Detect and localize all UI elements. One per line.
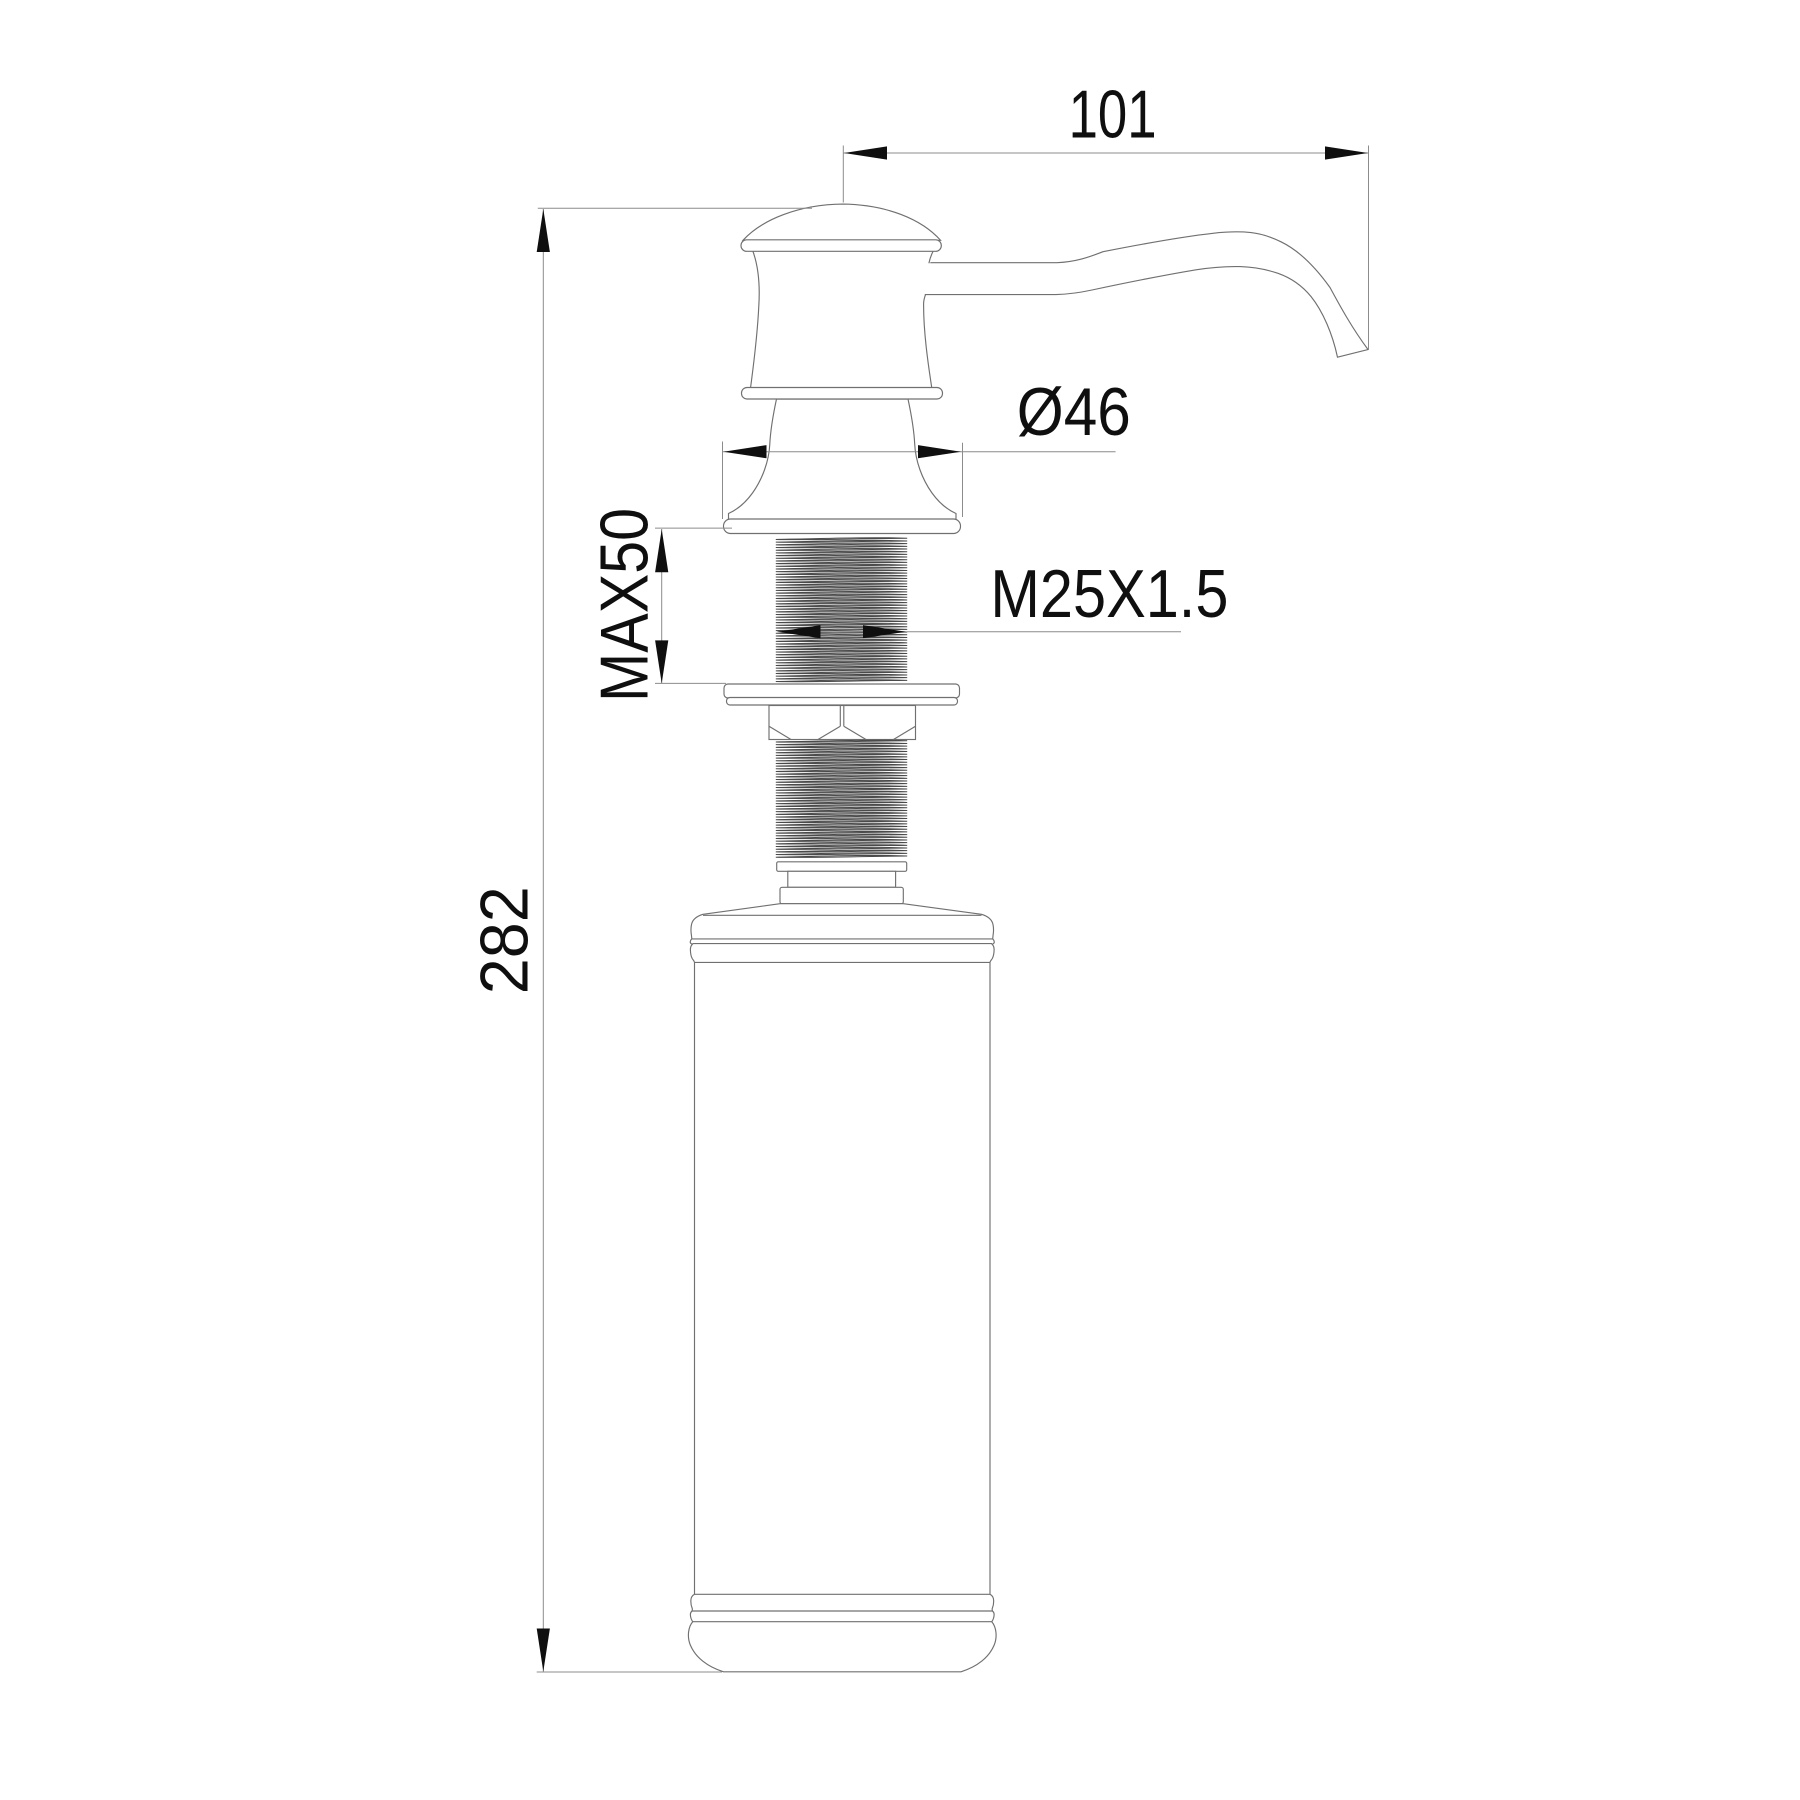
svg-text:MAX50: MAX50 <box>587 508 663 702</box>
svg-text:282: 282 <box>467 886 543 994</box>
svg-text:Ø46: Ø46 <box>1017 374 1131 450</box>
svg-text:101: 101 <box>1069 77 1157 153</box>
svg-text:M25X1.5: M25X1.5 <box>990 556 1228 632</box>
